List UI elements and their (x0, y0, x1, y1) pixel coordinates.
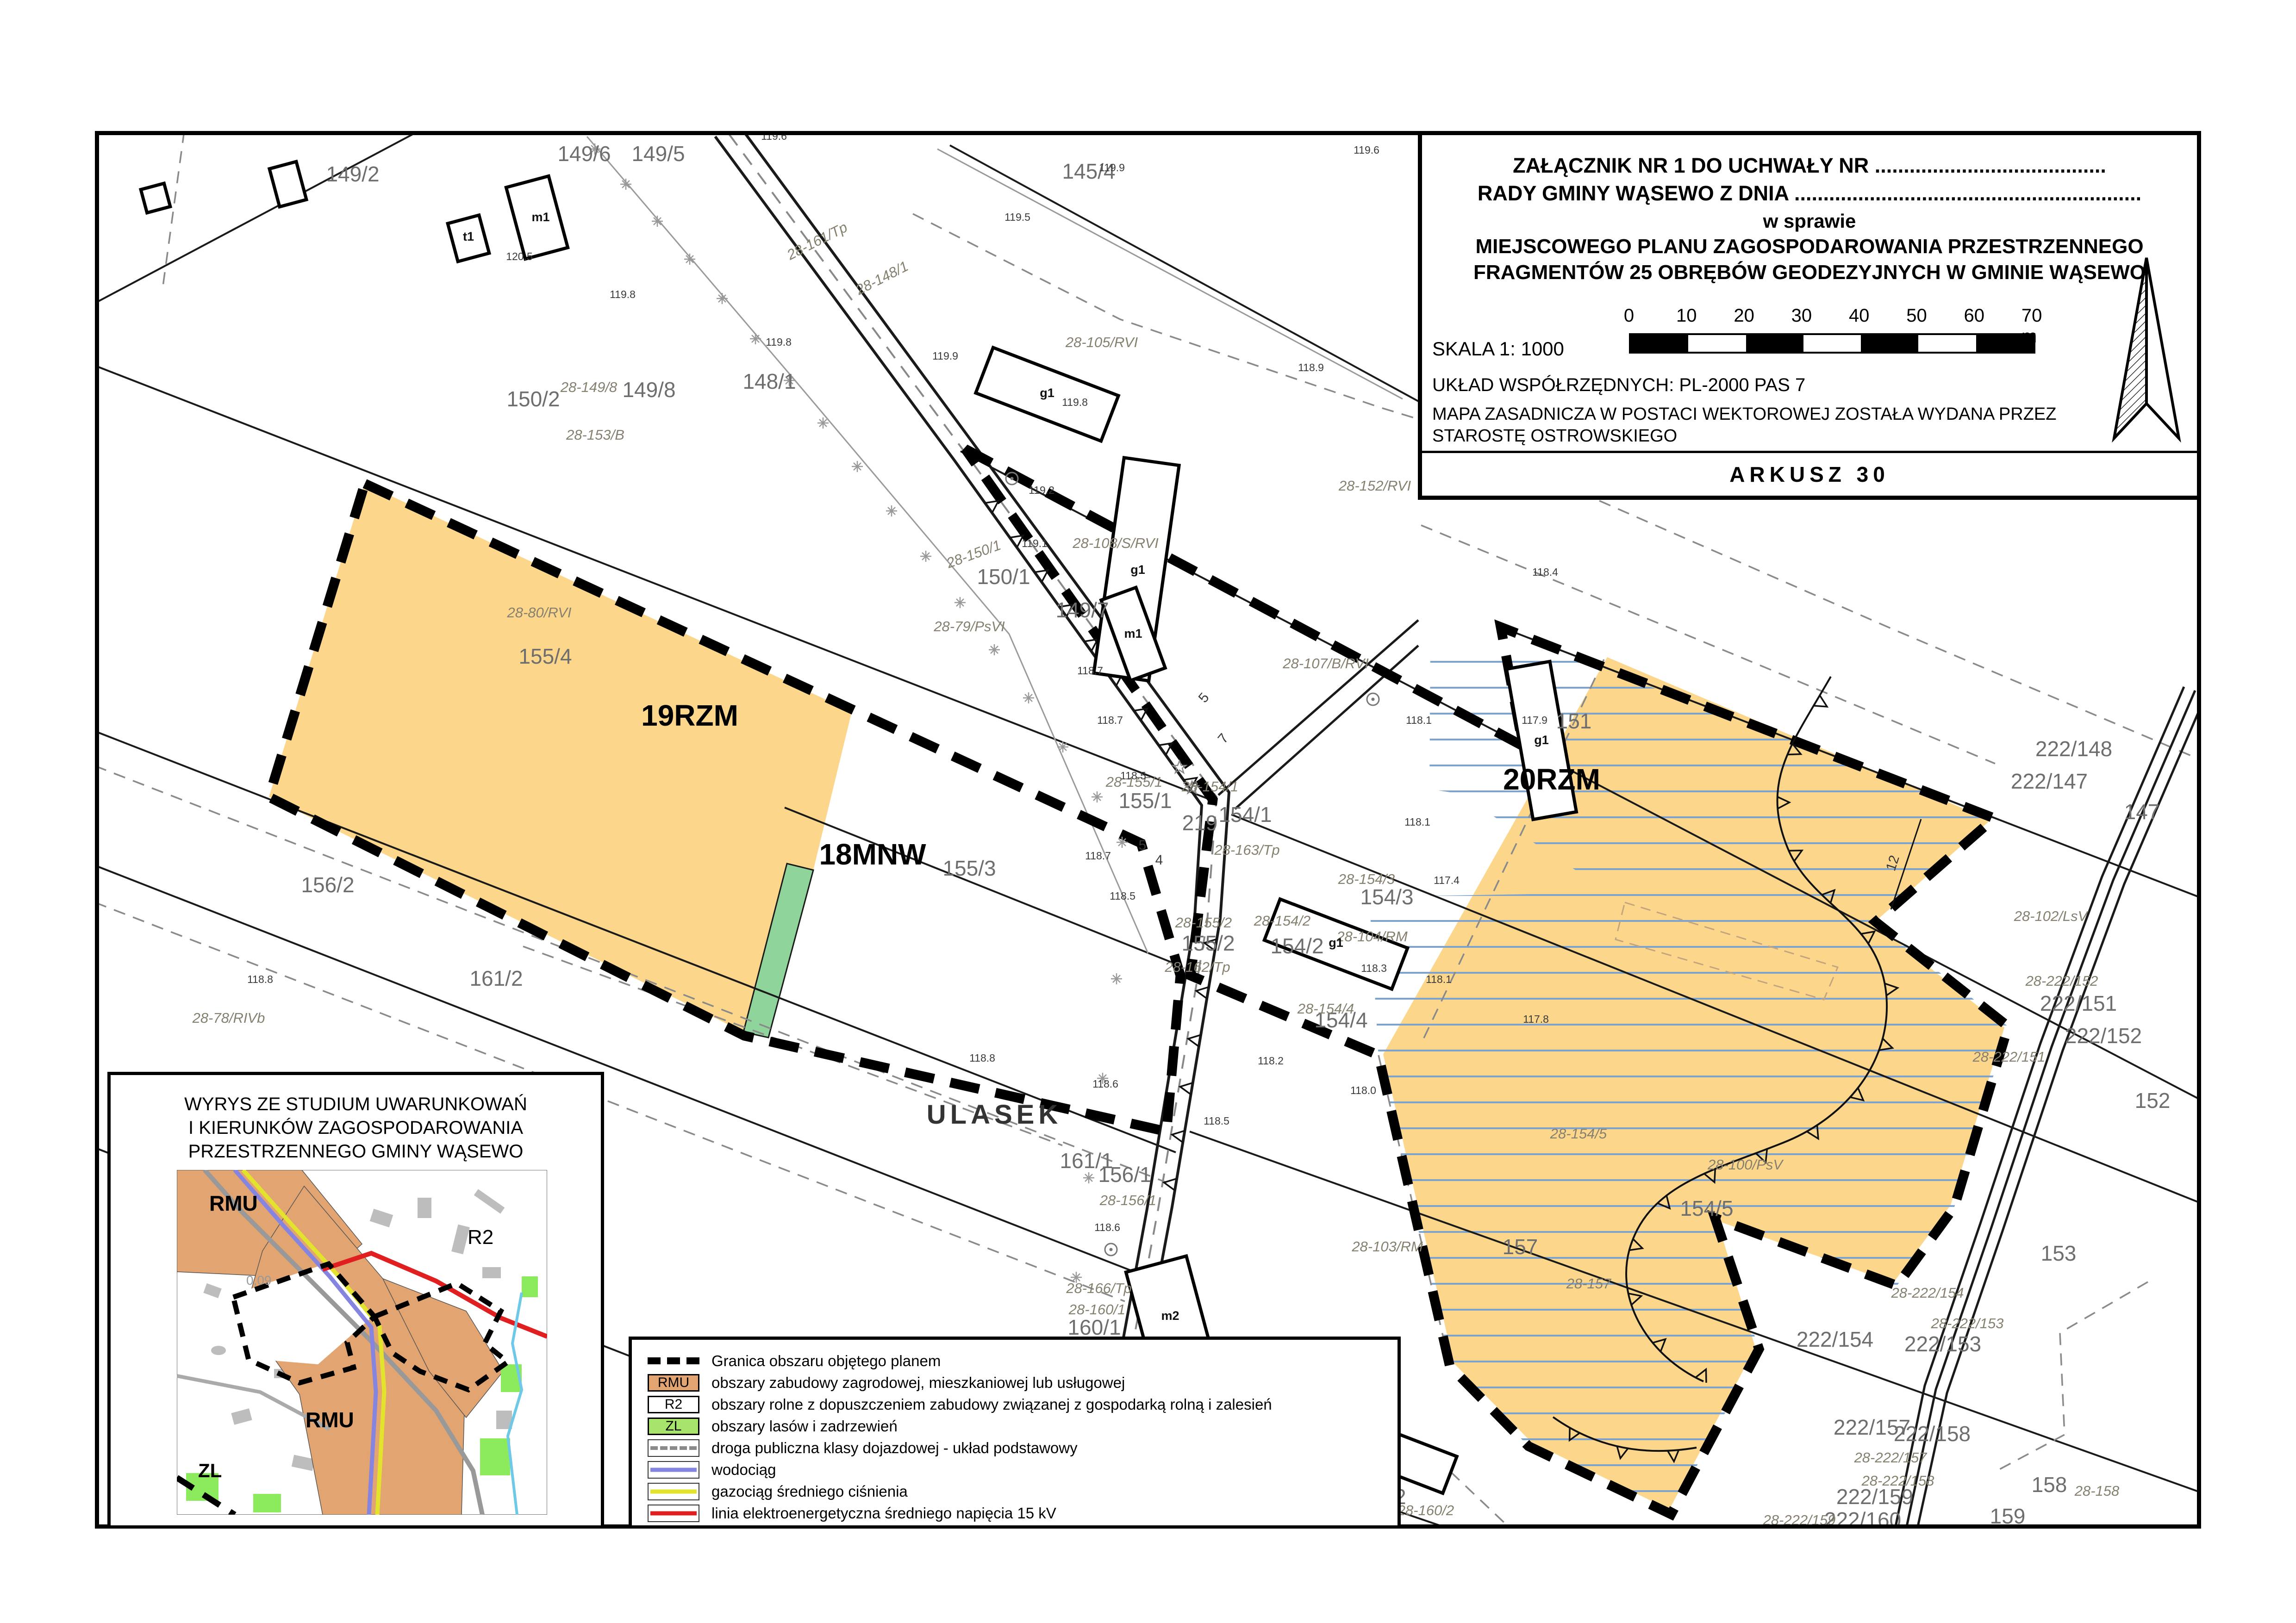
scalebar-tick-label: 40 (1849, 305, 1870, 326)
scalebar-tick-label: 50 (1906, 305, 1927, 326)
inset-map: RMUR2RMUZL0,09 (177, 1170, 547, 1515)
legend-row: Granica obszaru objętego planem (632, 1350, 1398, 1372)
scalebar-segment (1631, 335, 1688, 352)
legend-swatch-yline (648, 1483, 699, 1500)
legend-line-symbol (650, 1489, 697, 1493)
legend-swatch-wline (648, 1461, 699, 1479)
legend-swatch-zl: ZL (648, 1418, 699, 1435)
scalebar (1629, 333, 2035, 354)
sheet-number: ARKUSZ 30 (1729, 462, 1890, 487)
legend-label: droga publiczna klasy dojazdowej - układ… (711, 1439, 1078, 1457)
scalebar-segment (1918, 335, 1976, 352)
legend-label: linia elektroenergetyczna średniego napi… (711, 1505, 1056, 1522)
scalebar-tick-label: 60 (1964, 305, 1985, 326)
legend-row: ZLobszary lasów i zadrzewień (632, 1415, 1398, 1437)
legend-label: gazociąg średniego ciśnienia (711, 1483, 908, 1500)
legend-row: RMUobszary zabudowy zagrodowej, mieszkan… (632, 1372, 1398, 1393)
scalebar-segment (1976, 335, 2034, 352)
scale-text: SKALA 1: 1000 (1432, 338, 1564, 360)
legend-label: obszary zabudowy zagrodowej, mieszkaniow… (711, 1374, 1125, 1392)
legend-row: R2obszary rolne z dopuszczeniem zabudowy… (632, 1393, 1398, 1415)
scalebar-segment (1688, 335, 1746, 352)
scalebar-tick-label: 0 (1624, 305, 1634, 326)
inset-label: 0,09 (246, 1273, 272, 1287)
base-map-source-text: MAPA ZASADNICZA W POSTACI WEKTOROWEJ ZOS… (1432, 404, 2094, 447)
inset-label: RMU (306, 1408, 354, 1432)
legend-zone-code: RMU (658, 1375, 689, 1391)
regarding-line: w sprawie (1422, 210, 2197, 232)
legend-zone-code: R2 (665, 1397, 682, 1412)
legend-line-symbol (650, 1446, 697, 1450)
plan-title-line1: MIEJSCOWEGO PLANU ZAGOSPODAROWANIA PRZES… (1422, 235, 2197, 258)
legend-label: Granica obszaru objętego planem (711, 1352, 941, 1370)
legend: Granica obszaru objętego planemRMUobszar… (629, 1337, 1401, 1529)
scalebar-ticks: 010203040506070 m (1629, 305, 2033, 329)
scalebar-tick-label: 30 (1791, 305, 1812, 326)
legend-line-symbol (650, 1468, 697, 1472)
legend-label: wodociąg (711, 1461, 776, 1479)
legend-label: obszary lasów i zadrzewień (711, 1418, 898, 1435)
legend-row: linia elektroenergetyczna średniego napi… (632, 1502, 1398, 1524)
legend-swatch-r2: R2 (648, 1396, 699, 1413)
legend-swatch-road (648, 1439, 699, 1457)
legend-swatch-rline (648, 1505, 699, 1522)
scalebar-segment (1746, 335, 1803, 352)
legend-label: obszary rolne z dopuszczeniem zabudowy z… (711, 1396, 1272, 1413)
legend-boundary-symbol (648, 1357, 699, 1364)
inset-label: ZL (198, 1460, 222, 1481)
title-block: ZAŁĄCZNIK NR 1 DO UCHWAŁY NR ...........… (1418, 131, 2201, 455)
legend-swatch-rmu: RMU (648, 1374, 699, 1392)
plan-map-page: 19RZM18MNW20RZMULASEK149/2149/6149/5149/… (0, 0, 2296, 1623)
scalebar-segment (1861, 335, 1918, 352)
sheet-number-row: ARKUSZ 30 (1418, 451, 2201, 500)
inset-title-line1: WYRYS ZE STUDIUM UWARUNKOWAŃ (111, 1093, 601, 1116)
coordinate-system-text: UKŁAD WSPÓŁRZĘDNYCH: PL-2000 PAS 7 (1432, 375, 1805, 396)
legend-row: droga publiczna klasy dojazdowej - układ… (632, 1437, 1398, 1459)
north-arrow-icon (2098, 251, 2195, 450)
attachment-line: ZAŁĄCZNIK NR 1 DO UCHWAŁY NR ...........… (1422, 154, 2197, 178)
legend-row: gazociąg średniego ciśnienia (632, 1480, 1398, 1502)
inset-title-line3: PRZESTRZENNEGO GMINY WĄSEWO (111, 1140, 601, 1163)
inset-label: R2 (468, 1226, 493, 1249)
legend-zone-code: ZL (665, 1418, 681, 1434)
scalebar-segment (1803, 335, 1861, 352)
inset-title-line2: I KIERUNKÓW ZAGOSPODAROWANIA (111, 1116, 601, 1140)
plan-title-line2: FRAGMENTÓW 25 OBRĘBÓW GEODEZYJNYCH W GMI… (1422, 261, 2197, 284)
council-line: RADY GMINY WĄSEWO Z DNIA ...............… (1422, 181, 2197, 205)
study-inset: WYRYS ZE STUDIUM UWARUNKOWAŃ I KIERUNKÓW… (107, 1072, 604, 1529)
scalebar-tick-label: 10 (1676, 305, 1697, 326)
scalebar-tick-label: 20 (1734, 305, 1754, 326)
legend-row: wodociąg (632, 1459, 1398, 1480)
legend-line-symbol (650, 1511, 697, 1515)
inset-label: RMU (209, 1191, 258, 1215)
